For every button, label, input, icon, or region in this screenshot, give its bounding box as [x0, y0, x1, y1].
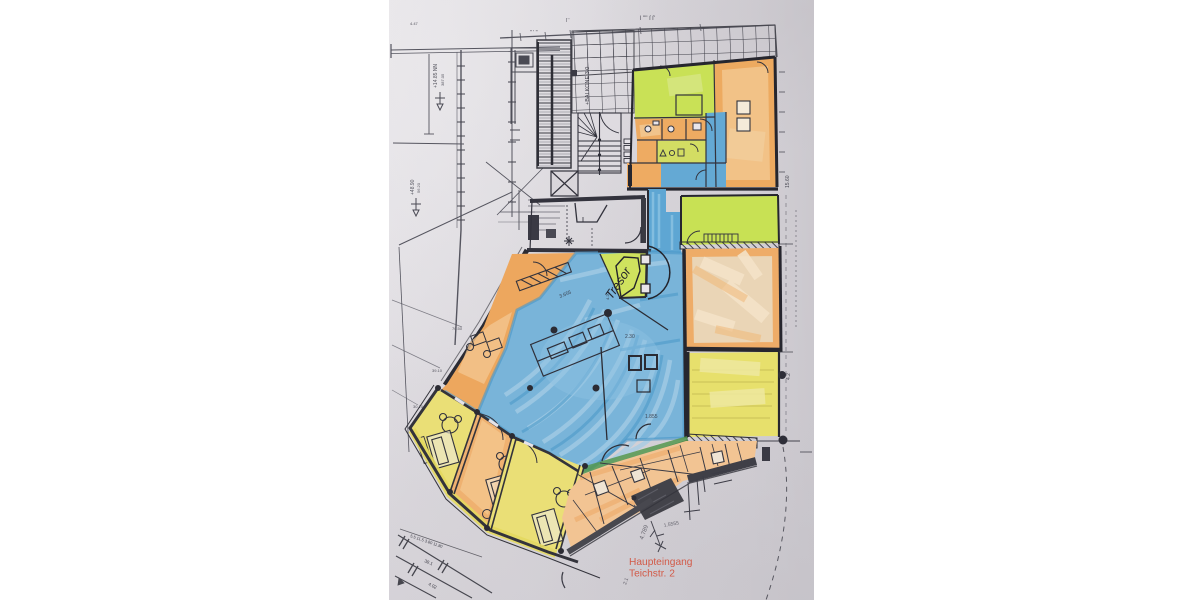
svg-text:4.47: 4.47 — [410, 21, 419, 26]
svg-text:Haupteingang: Haupteingang — [629, 557, 693, 568]
svg-text:1.855: 1.855 — [645, 414, 658, 420]
svg-text:ſ ': ſ ' — [566, 18, 570, 24]
svg-text:70.50: 70.50 — [452, 326, 463, 331]
svg-text:39.10: 39.10 — [432, 368, 443, 373]
svg-text:56.20: 56.20 — [416, 182, 421, 193]
svg-text:+14.85 NN: +14.85 NN — [433, 64, 439, 88]
svg-text:+BALKONE 3.0: +BALKONE 3.0 — [585, 67, 591, 105]
svg-text:l '''' ſ ſ': l '''' ſ ſ' — [640, 16, 655, 22]
svg-text:2.30: 2.30 — [625, 334, 635, 340]
svg-text:15.60: 15.60 — [785, 175, 791, 188]
svg-text:4.2: 4.2 — [786, 373, 792, 380]
svg-text:Teichstr. 2: Teichstr. 2 — [629, 569, 675, 580]
svg-text:387.05: 387.05 — [440, 73, 445, 86]
svg-text:'' ' '': '' ' '' — [530, 30, 538, 36]
